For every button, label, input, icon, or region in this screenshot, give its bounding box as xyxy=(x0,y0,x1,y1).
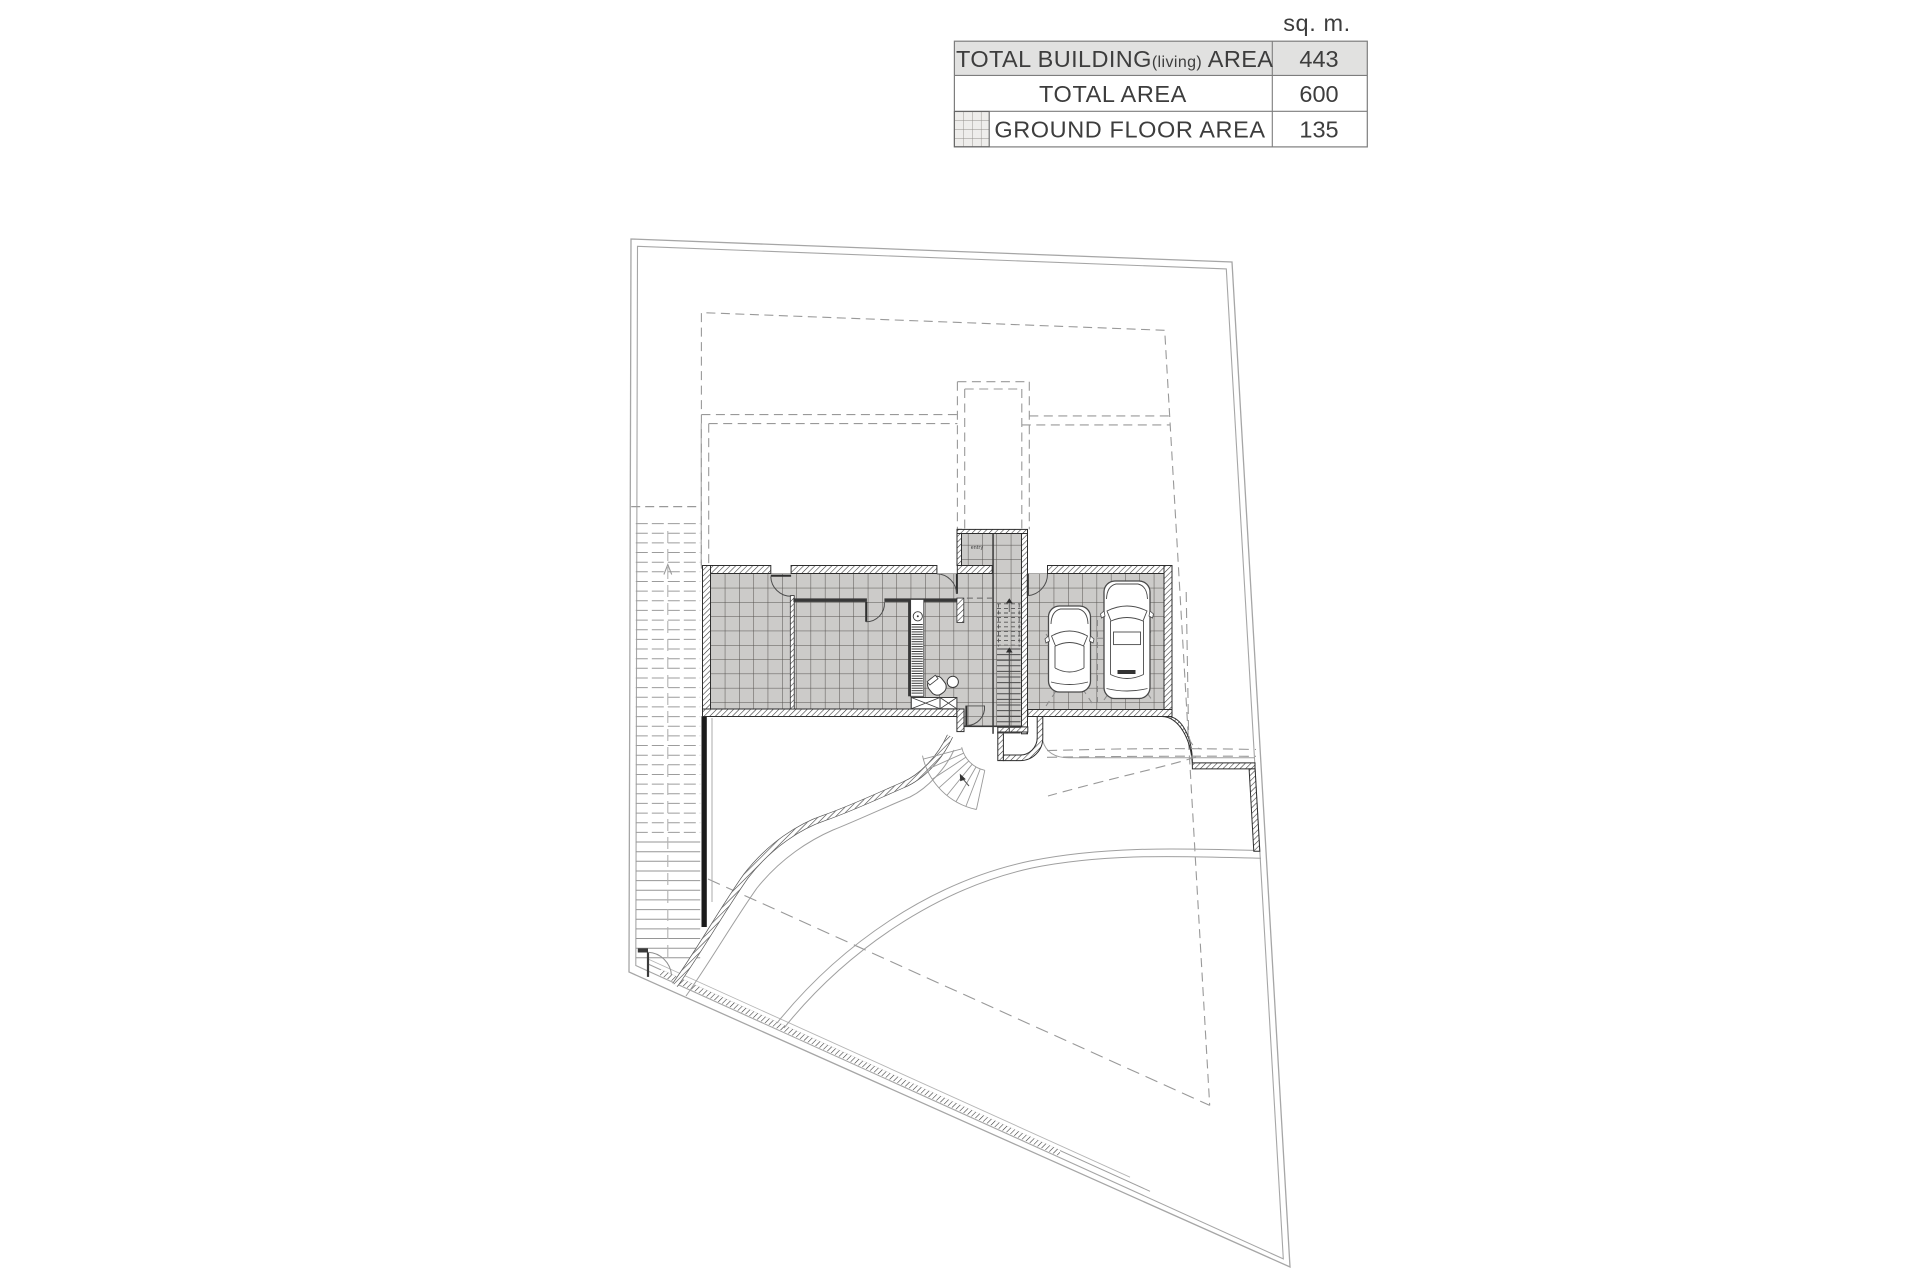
svg-text:600: 600 xyxy=(1299,81,1338,107)
svg-text:sq. m.: sq. m. xyxy=(1283,10,1351,36)
svg-text:443: 443 xyxy=(1299,46,1338,72)
svg-text:GROUND FLOOR AREA: GROUND FLOOR AREA xyxy=(994,117,1265,143)
svg-text:TOTAL BUILDING(living) AREA: TOTAL BUILDING(living) AREA xyxy=(956,46,1273,72)
svg-text:135: 135 xyxy=(1299,117,1338,143)
svg-text:TOTAL AREA: TOTAL AREA xyxy=(1039,81,1187,107)
svg-text:entry: entry xyxy=(971,545,984,551)
